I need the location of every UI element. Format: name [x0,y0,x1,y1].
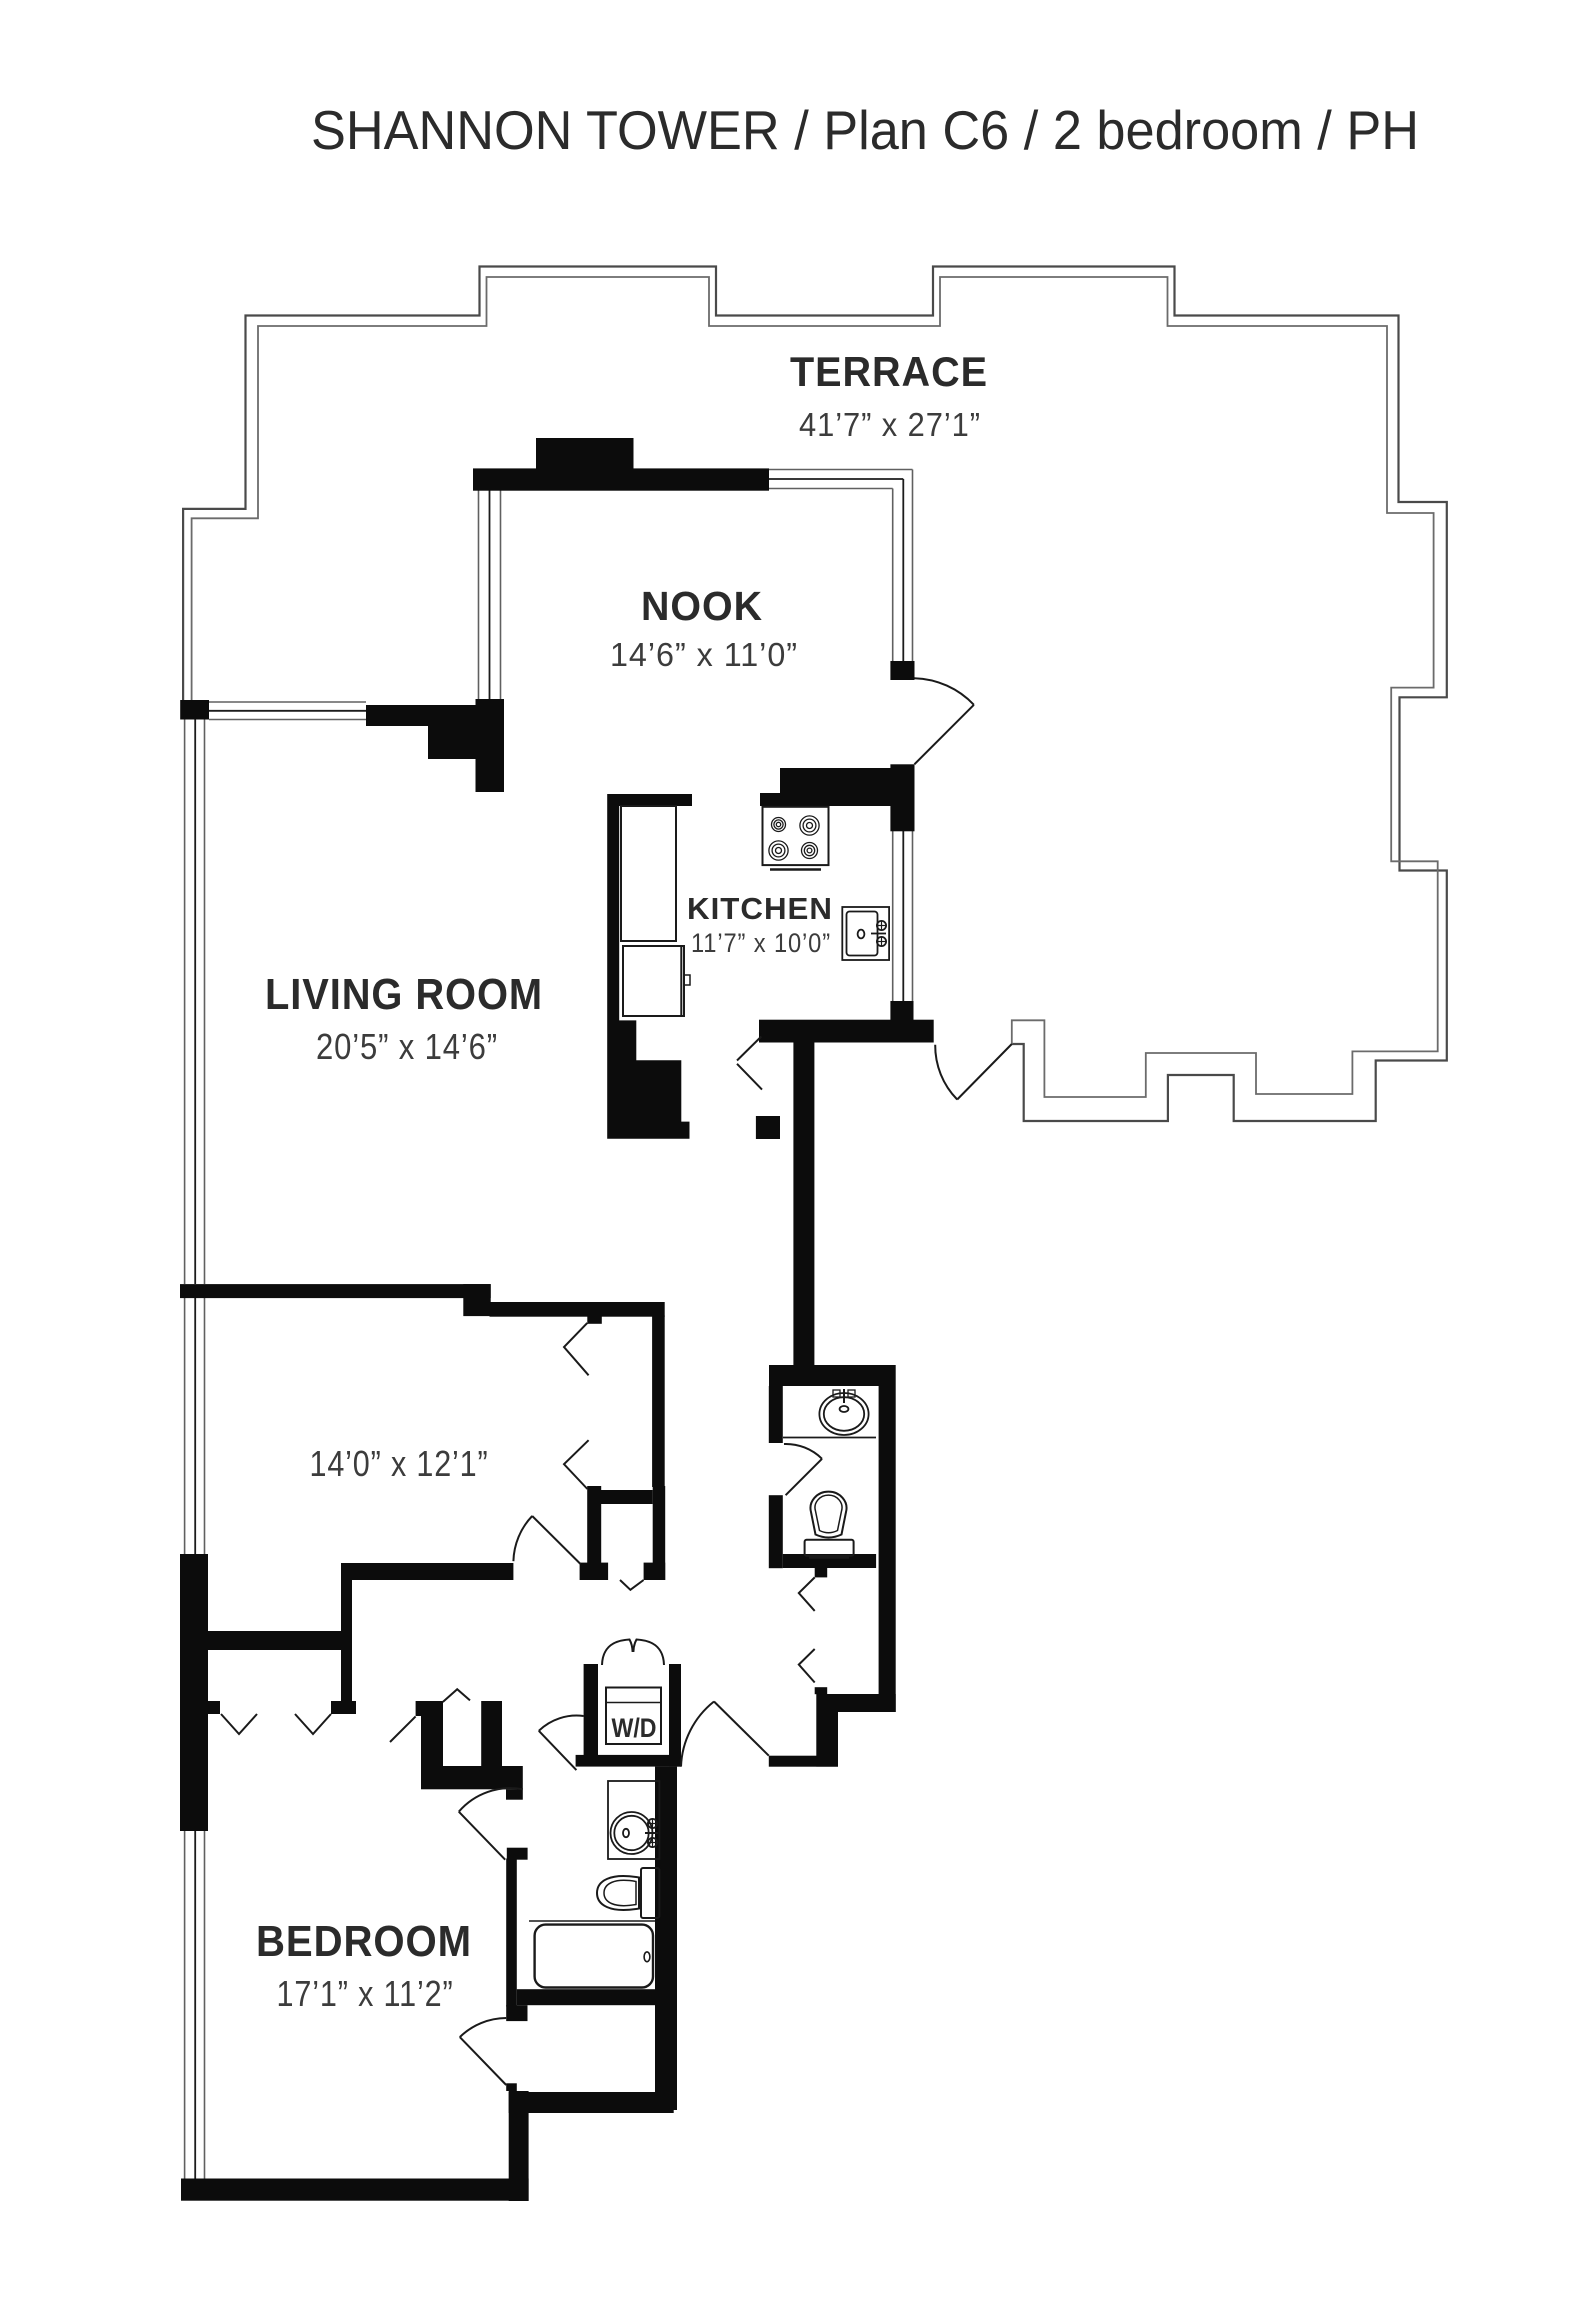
svg-text:KITCHEN: KITCHEN [687,891,833,926]
svg-text:BEDROOM: BEDROOM [256,1917,472,1966]
svg-text:LIVING ROOM: LIVING ROOM [265,970,543,1019]
svg-text:20’5” x 14’6”: 20’5” x 14’6” [316,1026,498,1067]
svg-text:11’7” x 10’0”: 11’7” x 10’0” [691,928,831,958]
svg-text:W/D: W/D [612,1713,657,1743]
svg-text:TERRACE: TERRACE [790,348,988,395]
svg-text:14’6” x 11’0”: 14’6” x 11’0” [610,636,798,673]
svg-text:17’1” x 11’2”: 17’1” x 11’2” [277,1973,454,2014]
svg-text:14’0” x 12’1”: 14’0” x 12’1” [310,1443,489,1484]
svg-text:NOOK: NOOK [641,583,763,629]
svg-text:41’7” x 27’1”: 41’7” x 27’1” [799,406,981,443]
svg-text:SHANNON TOWER / Plan C6 / 2 be: SHANNON TOWER / Plan C6 / 2 bedroom / PH [311,99,1419,161]
